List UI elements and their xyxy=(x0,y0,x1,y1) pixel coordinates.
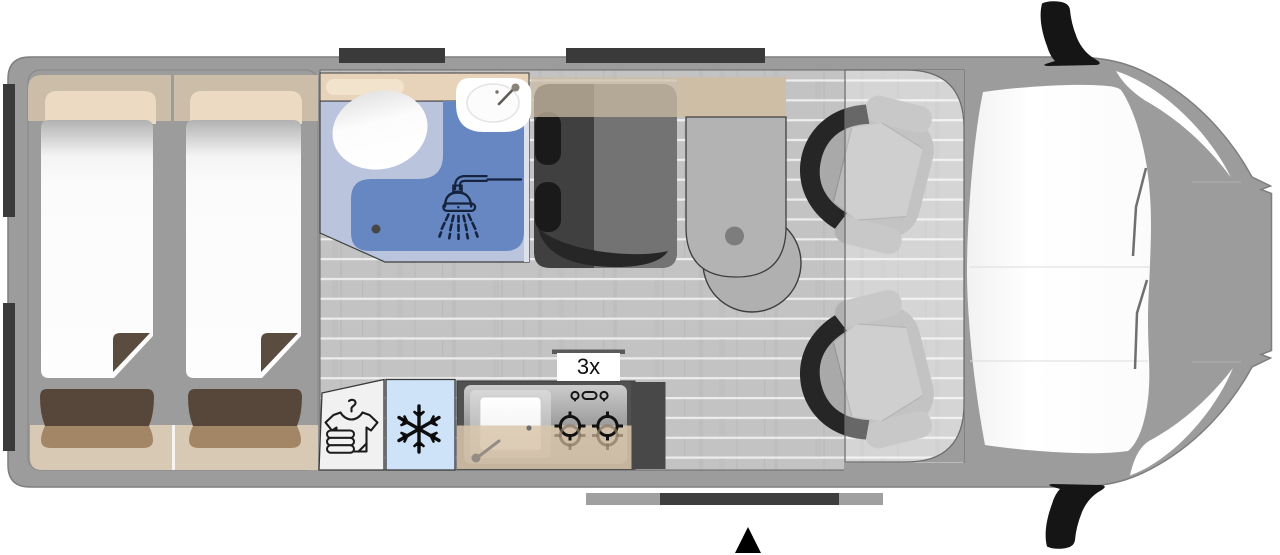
svg-text:3x: 3x xyxy=(577,354,600,379)
